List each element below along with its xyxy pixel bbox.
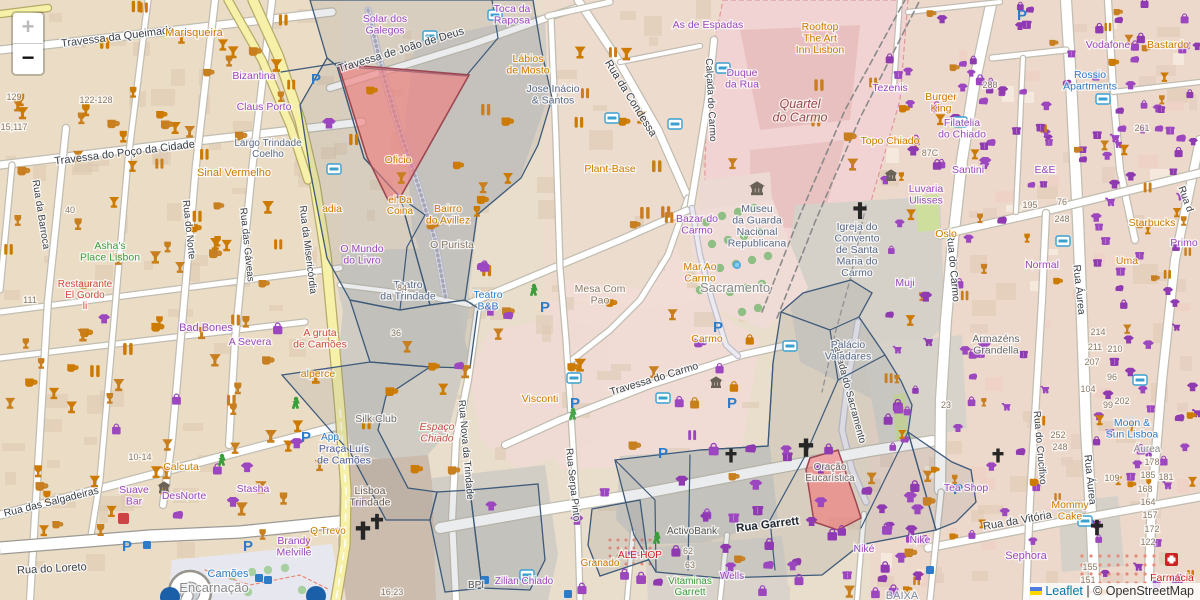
svg-text:Museu: Museu [741,203,773,215]
svg-text:A Severa: A Severa [229,336,272,348]
svg-text:P: P [243,538,253,555]
svg-text:adia: adia [322,203,342,215]
svg-text:36: 36 [391,328,401,338]
svg-text:Claus Porto: Claus Porto [237,101,292,113]
svg-text:214: 214 [1090,327,1105,337]
svg-text:O Purista: O Purista [430,239,474,251]
svg-text:B&B: B&B [477,301,498,313]
svg-text:Coelho: Coelho [252,149,284,160]
svg-text:Normal: Normal [1025,259,1059,271]
svg-text:P: P [540,299,550,316]
svg-text:Coina: Coina [387,206,414,217]
svg-text:248: 248 [1052,442,1067,452]
svg-text:Wells: Wells [720,571,744,582]
svg-text:P: P [311,71,321,88]
svg-text:Quartel: Quartel [780,97,822,111]
svg-text:Filatelia: Filatelia [944,117,980,129]
svg-text:62: 62 [683,546,693,556]
svg-text:Solar dos: Solar dos [363,13,407,25]
svg-text:211: 211 [1088,342,1102,352]
svg-text:195: 195 [1022,200,1037,210]
svg-text:Muji: Muji [895,277,914,289]
svg-text:202: 202 [1114,396,1129,406]
svg-text:Mommy: Mommy [1051,499,1089,511]
svg-text:do Avillez: do Avillez [426,215,470,227]
svg-text:Sephora: Sephora [1005,550,1047,562]
svg-text:87C: 87C [922,148,939,158]
svg-text:Topo Chiado: Topo Chiado [861,135,920,147]
svg-text:181: 181 [1158,472,1173,482]
svg-text:Bizantina: Bizantina [232,70,275,82]
svg-text:Rossio: Rossio [1074,69,1106,81]
svg-text:Chiado: Chiado [420,433,453,445]
svg-text:Apartments: Apartments [1063,81,1117,93]
svg-text:li: li [83,301,87,312]
svg-text:Restaurante: Restaurante [58,279,113,290]
svg-text:ALE-HOP: ALE-HOP [618,550,662,561]
svg-text:Carmo: Carmo [681,225,713,237]
svg-text:de Mosto: de Mosto [506,65,549,77]
svg-text:ActivoBank: ActivoBank [667,526,718,537]
svg-text:Bad Bones: Bad Bones [179,322,233,334]
svg-text:Sinal Vermelho: Sinal Vermelho [197,167,271,179]
svg-text:Plant-Base: Plant-Base [584,163,636,175]
svg-text:BPI: BPI [468,580,484,591]
svg-text:104: 104 [1080,384,1095,394]
svg-text:Igreja do: Igreja do [837,221,878,233]
svg-text:155: 155 [1082,562,1097,572]
svg-text:ei Da: ei Da [388,195,412,206]
svg-text:Carmo: Carmo [691,333,723,345]
svg-text:109: 109 [1104,473,1119,483]
svg-text:P: P [1017,7,1027,24]
svg-text:da Trindade: da Trindade [380,291,436,303]
svg-text:Mar Ao: Mar Ao [683,261,716,273]
svg-text:288: 288 [982,80,997,90]
svg-text:252: 252 [1050,430,1065,440]
svg-text:63: 63 [685,560,695,570]
svg-text:Granado: Granado [581,558,620,569]
svg-text:Starbucks: Starbucks [1129,217,1176,229]
svg-text:129: 129 [6,92,21,102]
svg-text:Suave: Suave [119,484,149,496]
svg-text:10-14: 10-14 [128,452,151,462]
svg-text:Raposa: Raposa [494,15,530,27]
svg-text:261: 261 [1134,123,1149,133]
svg-text:76: 76 [1057,197,1067,207]
svg-text:99: 99 [1103,400,1113,410]
svg-text:168: 168 [1137,484,1152,494]
svg-text:P: P [727,395,737,412]
svg-text:Jose Inácio: Jose Inácio [526,83,579,95]
svg-text:Trindade: Trindade [349,497,390,509]
svg-text:Tea Shop: Tea Shop [944,482,989,494]
svg-text:Luvaria: Luvaria [909,183,944,195]
svg-text:da Guarda: da Guarda [732,215,782,227]
svg-text:Carmo: Carmo [841,267,873,279]
svg-text:de Camões: de Camões [293,339,347,351]
svg-text:& Santos: & Santos [532,95,575,107]
svg-text:Camões: Camões [208,568,249,580]
svg-text:Marisqueira: Marisqueira [165,27,223,39]
svg-text:248: 248 [1054,214,1069,224]
svg-text:Bastardo: Bastardo [1147,39,1189,51]
svg-text:Pao: Pao [591,295,610,307]
svg-text:Carmo: Carmo [684,273,716,285]
svg-text:Ulisses: Ulisses [909,195,943,207]
svg-text:Nike: Nike [909,534,930,546]
svg-text:Nacional: Nacional [737,226,778,238]
svg-text:Espaço: Espaço [419,421,454,433]
svg-text:do Carmo: do Carmo [773,111,828,125]
svg-text:Cake: Cake [1058,511,1083,523]
svg-text:Lisboa: Lisboa [355,485,386,497]
svg-text:Bar: Bar [126,496,143,508]
svg-text:Bairro: Bairro [434,203,462,215]
svg-text:172: 172 [1144,524,1159,534]
svg-text:Galegos: Galegos [365,25,404,37]
svg-text:A gruta: A gruta [303,327,336,339]
svg-text:BAIXA: BAIXA [886,590,919,600]
svg-text:Sun Lisboa: Sun Lisboa [1106,429,1159,441]
svg-text:Santini: Santini [952,164,984,176]
svg-text:Maria do: Maria do [837,256,878,268]
svg-text:de Camões: de Camões [317,455,371,467]
svg-text:207: 207 [1084,357,1099,367]
svg-text:Silk Club: Silk Club [355,413,397,425]
svg-text:Armazéns: Armazéns [972,333,1019,345]
svg-text:As de Espadas: As de Espadas [673,19,744,31]
svg-text:King: King [930,103,951,115]
svg-text:alperce: alperce [301,368,336,380]
svg-text:Oslo: Oslo [935,228,957,240]
svg-text:do Chiado: do Chiado [938,129,986,141]
svg-text:23: 23 [941,400,951,410]
svg-text:Largo Trindade: Largo Trindade [234,138,302,149]
svg-text:Mesa Com: Mesa Com [575,283,626,295]
svg-text:84: 84 [397,283,407,293]
svg-text:The Art: The Art [803,33,837,45]
svg-text:Inn Lisbon: Inn Lisbon [796,44,845,56]
svg-text:Praça Luís: Praça Luís [319,443,369,455]
svg-text:Rooftop: Rooftop [802,21,839,33]
svg-text:122: 122 [1140,537,1155,547]
svg-text:Uma: Uma [1116,255,1138,267]
svg-text:Garrett: Garrett [674,587,705,598]
svg-text:App: App [321,432,339,443]
svg-text:Calcuta: Calcuta [163,461,199,473]
svg-text:Valadares: Valadares [825,351,872,363]
svg-text:111: 111 [23,295,37,305]
svg-text:122-128: 122-128 [79,95,112,105]
svg-text:Grandella: Grandella [973,345,1019,357]
svg-text:Oração: Oração [814,462,847,473]
svg-text:de Santa: de Santa [836,244,878,256]
svg-text:Stasha: Stasha [237,483,270,495]
svg-text:Convento: Convento [835,233,880,245]
svg-text:96: 96 [1107,372,1117,382]
svg-text:Republicana: Republicana [728,238,787,250]
svg-text:185: 185 [1140,470,1155,480]
svg-text:Primo: Primo [1170,237,1198,249]
svg-text:Asha's: Asha's [94,240,125,252]
svg-text:P: P [658,445,668,462]
svg-text:Zilian Chiado: Zilian Chiado [495,576,554,587]
svg-text:DesNorte: DesNorte [162,490,207,502]
svg-text:P: P [301,429,311,446]
svg-text:Tezenis: Tezenis [872,82,908,94]
svg-text:Burger: Burger [925,91,957,103]
svg-text:Toca da: Toca da [494,3,531,15]
svg-text:Palácio: Palácio [831,339,866,351]
svg-text:Vitaminas: Vitaminas [668,576,712,587]
svg-text:Duque: Duque [727,67,758,79]
svg-text:Melville: Melville [276,547,311,559]
svg-text:Place Lisbon: Place Lisbon [80,252,140,264]
svg-text:Vodafone: Vodafone [1086,39,1131,51]
svg-text:El Gordo: El Gordo [65,290,105,301]
svg-text:Bazar do: Bazar do [676,213,718,225]
svg-text:da Rua: da Rua [725,79,759,91]
svg-text:15,117: 15,117 [1,122,28,132]
svg-text:Eucarística: Eucarística [805,473,855,484]
svg-text:40: 40 [65,205,75,215]
svg-text:210: 210 [1107,344,1122,354]
svg-text:O Mundo: O Mundo [340,243,383,255]
svg-text:Q Trevo: Q Trevo [310,526,346,537]
svg-text:Teatro: Teatro [473,289,502,301]
svg-text:157: 157 [1142,510,1157,520]
svg-text:E&E: E&E [1034,164,1055,176]
svg-text:Áurea: Áurea [1134,442,1161,455]
svg-text:P: P [122,538,132,555]
svg-text:Lábios: Lábios [513,53,544,65]
svg-text:Oficio: Oficio [385,154,412,166]
svg-text:Moon &: Moon & [1114,417,1150,429]
svg-text:16,23: 16,23 [381,587,404,597]
svg-text:Niké: Niké [853,543,874,555]
svg-text:Visconti: Visconti [522,393,559,405]
svg-text:Encarnação: Encarnação [179,580,248,595]
svg-text:164: 164 [1140,497,1155,507]
svg-text:do Livro: do Livro [343,255,381,267]
svg-text:Brandy: Brandy [277,535,311,547]
svg-text:178: 178 [1144,457,1159,467]
